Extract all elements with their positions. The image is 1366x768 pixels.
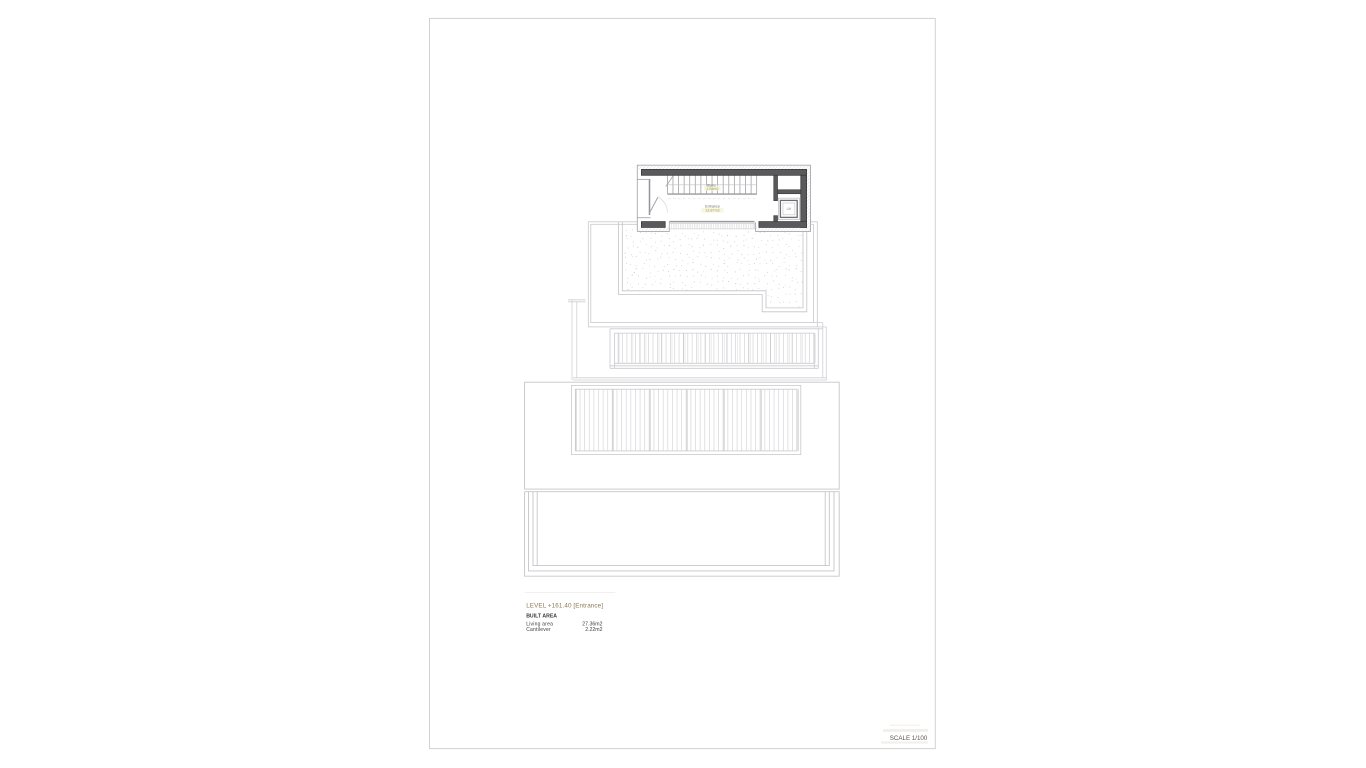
- svg-text:13.87m2: 13.87m2: [705, 209, 720, 213]
- svg-text:Lift: Lift: [787, 207, 792, 211]
- svg-text:Cantilever: Cantilever: [526, 627, 551, 633]
- svg-text:BUILT AREA: BUILT AREA: [526, 614, 557, 620]
- svg-text:SCALE 1/100: SCALE 1/100: [890, 735, 928, 742]
- svg-text:LEVEL +161.40 [Entrance]: LEVEL +161.40 [Entrance]: [526, 602, 603, 609]
- svg-text:2.22m2: 2.22m2: [585, 627, 602, 633]
- svg-text:1.08m2: 1.08m2: [706, 187, 718, 191]
